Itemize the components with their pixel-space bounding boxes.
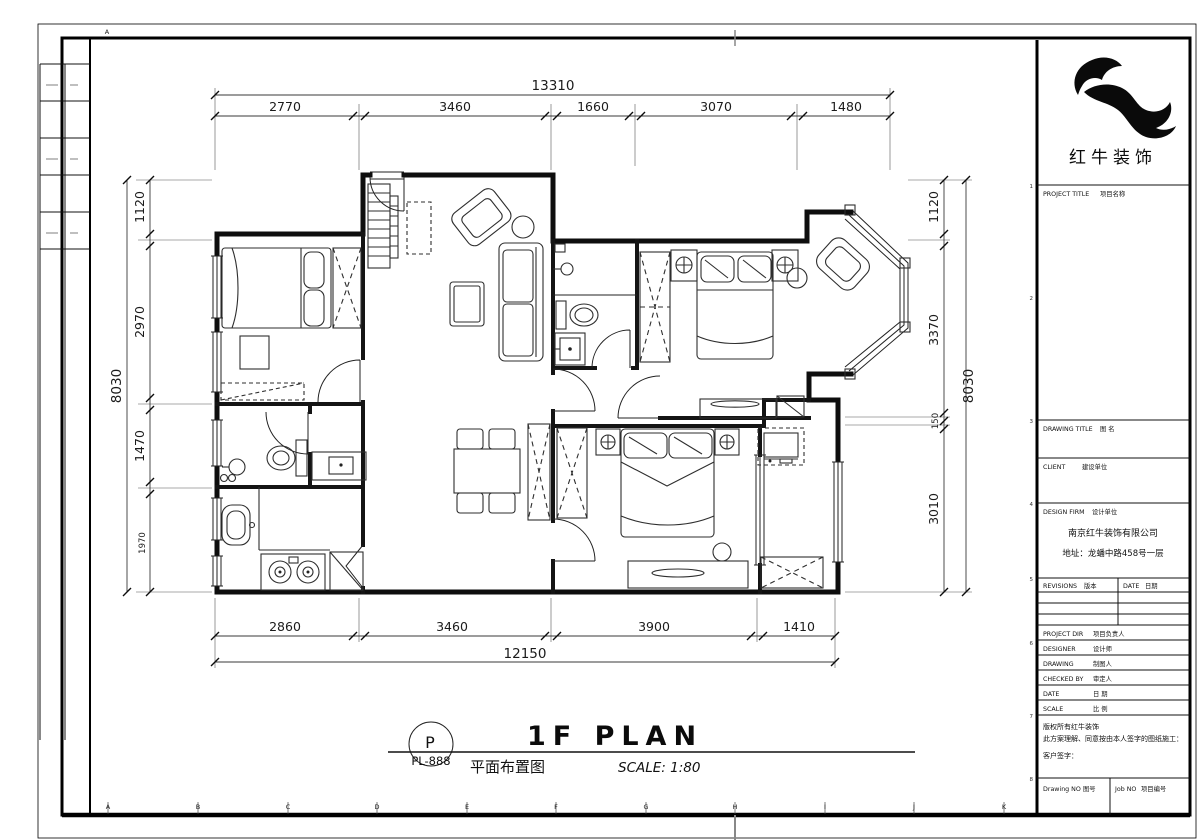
checked-by-label-cn: 审定人 bbox=[1093, 674, 1113, 683]
grid-number: 8 bbox=[1030, 777, 1034, 783]
dim-bottom-seg: 3900 bbox=[638, 619, 670, 634]
dim-bottom-seg: 3460 bbox=[436, 619, 468, 634]
grid-number: 6 bbox=[1030, 641, 1034, 647]
date-label: DATE bbox=[1043, 691, 1059, 698]
grid-letter-top: A bbox=[105, 28, 110, 36]
grid-number: 1 bbox=[1030, 184, 1034, 190]
title-block: 红牛装饰 PROJECT TITLE 项目名称 DRAWING TITLE 图 … bbox=[1037, 40, 1190, 815]
date-col-label: DATE bbox=[1123, 583, 1139, 590]
scale-label: SCALE bbox=[1043, 706, 1063, 713]
brand-logo: 红牛装饰 bbox=[1069, 58, 1176, 168]
grid-letter: D bbox=[374, 803, 379, 811]
bed bbox=[621, 429, 714, 537]
dim-top-seg: 1480 bbox=[830, 99, 862, 114]
revisions-label-cn: 版本 bbox=[1084, 581, 1097, 590]
grid-number: 7 bbox=[1030, 714, 1034, 720]
drawing-label-cn: 制图人 bbox=[1093, 659, 1113, 668]
desk bbox=[240, 336, 269, 369]
company-address: 地址：龙蟠中路458号一层 bbox=[1062, 548, 1163, 559]
toilet bbox=[556, 301, 566, 329]
grid-number: 5 bbox=[1030, 577, 1034, 583]
windows bbox=[211, 205, 910, 586]
bathroom1-fixtures bbox=[221, 440, 308, 482]
project-dir-label: PROJECT DIR bbox=[1043, 631, 1084, 638]
design-firm-label-cn: 设计单位 bbox=[1092, 507, 1118, 516]
plan-scale: SCALE: 1:80 bbox=[618, 760, 700, 776]
grid-number: 4 bbox=[1030, 502, 1034, 508]
designer-label-cn: 设计师 bbox=[1093, 644, 1112, 653]
date-col-label-cn: 日期 bbox=[1145, 582, 1158, 590]
bedroom2-furniture bbox=[221, 248, 361, 400]
revisions-label: REVISIONS bbox=[1043, 583, 1077, 590]
chair bbox=[489, 493, 515, 513]
stove bbox=[261, 554, 325, 590]
dim-left-seg: 1120 bbox=[132, 191, 147, 223]
counter bbox=[259, 487, 330, 550]
grid-letters-bottom: A B C D E F G H I J K bbox=[106, 802, 1007, 814]
chair bbox=[457, 493, 483, 513]
dim-left-seg: 2970 bbox=[132, 306, 147, 338]
grid-letter: K bbox=[1002, 803, 1007, 811]
dining-furniture bbox=[312, 424, 550, 520]
dim-right-seg: 3370 bbox=[926, 314, 941, 346]
drawing-no-label: Drawing NO bbox=[1043, 786, 1081, 793]
plan-tag-code: PL-888 bbox=[411, 754, 450, 768]
kitchen-furniture bbox=[222, 487, 363, 590]
floor-plan bbox=[211, 172, 910, 592]
dim-right-seg: 3010 bbox=[926, 493, 941, 525]
grid-letter: C bbox=[286, 803, 291, 811]
coffee-table bbox=[450, 282, 484, 326]
designer-label: DESIGNER bbox=[1043, 646, 1076, 653]
grid-letter: B bbox=[196, 803, 200, 811]
sofa bbox=[499, 243, 543, 361]
dim-top-seg: 3070 bbox=[700, 99, 732, 114]
chair bbox=[457, 429, 483, 449]
bed bbox=[697, 252, 773, 359]
ceiling-unit bbox=[407, 202, 431, 254]
brand-name: 红牛装饰 bbox=[1069, 148, 1157, 168]
scale-label-cn: 比 例 bbox=[1093, 704, 1108, 713]
dim-top-seg: 2770 bbox=[269, 99, 301, 114]
plan-subtitle: 平面布置图 bbox=[470, 758, 545, 776]
dim-left-total: 8030 bbox=[109, 369, 125, 403]
grid-letter: E bbox=[465, 803, 469, 811]
armchair bbox=[449, 185, 515, 249]
dim-right-total: 8030 bbox=[961, 369, 977, 403]
living-room-furniture bbox=[368, 184, 543, 361]
client-label: CLIENT bbox=[1043, 464, 1065, 471]
toilet bbox=[296, 440, 307, 476]
checked-by-label: CHECKED BY bbox=[1043, 676, 1083, 683]
dresser bbox=[628, 561, 748, 588]
date-label-cn: 日 期 bbox=[1093, 690, 1108, 698]
grid-letter: I bbox=[824, 803, 826, 811]
dim-bottom-seg: 1410 bbox=[783, 619, 815, 634]
grid-number: 2 bbox=[1030, 296, 1034, 302]
bedroom3-furniture bbox=[557, 428, 748, 588]
grid-letter: G bbox=[643, 803, 648, 811]
grid-letter: J bbox=[912, 803, 915, 811]
company-name: 南京红牛装饰有限公司 bbox=[1068, 527, 1158, 539]
grid-letter: F bbox=[554, 803, 558, 811]
dim-left-seg: 1470 bbox=[132, 430, 147, 462]
dim-top-seg: 3460 bbox=[439, 99, 471, 114]
drawing-label: DRAWING bbox=[1043, 661, 1074, 668]
copyright-note: 版权所有红牛装饰 bbox=[1043, 722, 1099, 731]
shoe-cabinet bbox=[368, 184, 390, 268]
dining-table bbox=[454, 449, 520, 493]
floor-plan-sheet: A A B C D E F G H I J K 1 2 3 4 5 6 7 8 bbox=[0, 0, 1200, 840]
job-no-label-cn: 项目编号 bbox=[1141, 784, 1166, 793]
project-title-label: PROJECT TITLE bbox=[1043, 191, 1089, 198]
drawing-title-label-cn: 图 名 bbox=[1100, 424, 1115, 433]
dim-left-seg: 1970 bbox=[138, 532, 148, 554]
grid-numbers-side: 1 2 3 4 5 6 7 8 bbox=[1030, 184, 1034, 783]
dim-right-seg: 1120 bbox=[926, 191, 941, 223]
dim-top-total: 13310 bbox=[532, 78, 575, 94]
dim-bottom-seg: 2860 bbox=[269, 619, 301, 634]
bathroom2-fixtures bbox=[553, 244, 598, 365]
drawing-no-label-cn: 图号 bbox=[1083, 785, 1096, 793]
plan-tag-letter: P bbox=[425, 733, 435, 752]
dim-right-seg: 150 bbox=[931, 413, 941, 429]
project-title-label-cn: 项目名称 bbox=[1100, 189, 1126, 198]
shower-head bbox=[561, 263, 573, 275]
project-dir-label-cn: 项目负责人 bbox=[1093, 629, 1125, 638]
drawing-sheet: A A B C D E F G H I J K 1 2 3 4 5 6 7 8 bbox=[0, 0, 1200, 840]
stool bbox=[713, 543, 731, 561]
basin bbox=[229, 459, 245, 475]
client-signature-label: 客户签字： bbox=[1043, 751, 1078, 760]
master-bedroom-furniture bbox=[640, 234, 874, 418]
armchair bbox=[812, 234, 873, 294]
bull-logo-icon bbox=[1084, 85, 1176, 139]
design-firm-label: DESIGN FIRM bbox=[1043, 509, 1085, 516]
grid-letter: H bbox=[733, 803, 738, 811]
dim-bottom-total: 12150 bbox=[504, 646, 547, 662]
tv-cabinet bbox=[312, 452, 366, 480]
balcony-furniture bbox=[758, 428, 823, 588]
drawing-title-label: DRAWING TITLE bbox=[1043, 426, 1093, 433]
plan-title: P PL-888 1F PLAN 平面布置图 SCALE: 1:80 bbox=[388, 721, 915, 776]
agreement-note: 此方案理解、同意按由本人签字的图纸施工： bbox=[1043, 734, 1183, 743]
side-table bbox=[787, 268, 807, 288]
chair bbox=[489, 429, 515, 449]
side-table bbox=[512, 216, 534, 238]
client-label-cn: 建设单位 bbox=[1082, 462, 1108, 471]
grid-number: 3 bbox=[1030, 419, 1034, 425]
dim-top-seg: 1660 bbox=[577, 99, 609, 114]
plan-title-text: 1F PLAN bbox=[527, 721, 703, 752]
job-no-label: Job NO bbox=[1114, 786, 1136, 793]
grid-letter: A bbox=[106, 803, 111, 811]
